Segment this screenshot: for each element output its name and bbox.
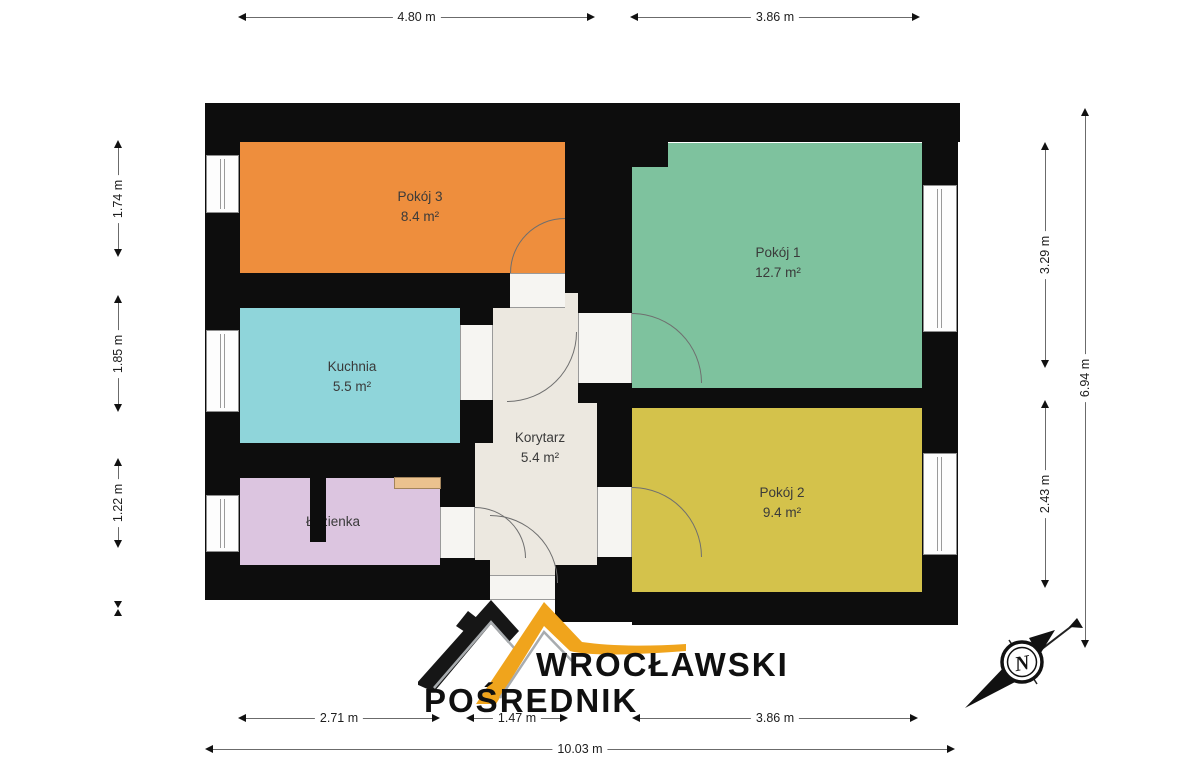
arrow-down-icon — [114, 540, 122, 548]
arrow-left-icon — [238, 714, 246, 722]
arrow-up-icon — [1041, 400, 1049, 408]
window-left-pokoj3 — [206, 155, 239, 213]
dim-label: 1.85 m — [111, 329, 125, 377]
door-opening-pokoj3 — [510, 273, 565, 308]
dimension-top-480: 4.80 m — [238, 10, 595, 24]
dimension-right-243: 2.43 m — [1038, 400, 1052, 588]
dimension-left-174: 1.74 m — [111, 140, 125, 257]
dimension-left-185: 1.85 m — [111, 295, 125, 412]
arrow-up-icon — [114, 295, 122, 303]
room-name: Kuchnia — [328, 357, 377, 377]
room-label-kuchnia: Kuchnia 5.5 m² — [328, 357, 377, 398]
window-glass-icon — [220, 159, 225, 209]
arrow-up-icon — [114, 140, 122, 148]
room-label-pokoj3: Pokój 3 8.4 m² — [397, 187, 442, 228]
window-left-lazienka — [206, 495, 239, 552]
room-name: Pokój 3 — [397, 187, 442, 207]
dimension-bottom-271: 2.71 m — [238, 711, 440, 725]
room-area: 8.4 m² — [397, 207, 442, 227]
wall-pokoj1-pokoj2-divider — [632, 388, 922, 408]
window-glass-icon — [937, 457, 942, 551]
room-area: 9.4 m² — [759, 503, 804, 523]
window-left-kuchnia — [206, 330, 239, 412]
arrow-up-icon — [1081, 108, 1089, 116]
window-glass-icon — [220, 334, 225, 408]
window-glass-icon — [220, 499, 225, 548]
arrow-up-icon — [114, 458, 122, 466]
dim-label: 2.71 m — [315, 711, 363, 725]
dim-label: 2.43 m — [1038, 470, 1052, 518]
wall-lazienka-stub — [310, 478, 326, 542]
room-label-pokoj2: Pokój 2 9.4 m² — [759, 483, 804, 524]
arrow-down-icon — [114, 601, 122, 608]
brand-logo: WROCŁAWSKI POŚREDNIK — [418, 598, 838, 723]
room-area: 12.7 m² — [755, 263, 801, 283]
arrow-down-icon — [1041, 580, 1049, 588]
door-opening-kuchnia — [460, 325, 493, 400]
dim-label: 1.22 m — [111, 479, 125, 527]
room-name: Pokój 2 — [759, 483, 804, 503]
room-name: Korytarz — [515, 428, 565, 448]
floor-plan-page: Łazienka Pokój 3 8.4 m² Pokój 1 12.7 m² — [0, 0, 1197, 770]
arrow-right-icon — [587, 13, 595, 21]
brand-name-line1: WROCŁAWSKI — [536, 648, 789, 681]
window-glass-icon — [937, 189, 942, 328]
dimension-top-386: 3.86 m — [630, 10, 920, 24]
arrow-left-icon — [205, 745, 213, 753]
arrow-right-icon — [910, 714, 918, 722]
brand-name-line2: POŚREDNIK — [424, 684, 638, 717]
dimension-right-694: 6.94 m — [1078, 108, 1092, 648]
door-opening-pokoj1 — [578, 313, 632, 383]
window-right-pokoj2 — [923, 453, 957, 555]
arrow-down-icon — [1041, 360, 1049, 368]
arrow-right-icon — [947, 745, 955, 753]
arrow-down-icon — [114, 404, 122, 412]
arrow-left-icon — [238, 13, 246, 21]
wall-entry-left — [440, 560, 490, 600]
dim-label: 3.29 m — [1038, 231, 1052, 279]
bathroom-shelf — [394, 477, 441, 489]
dim-label: 1.74 m — [111, 174, 125, 222]
dimension-right-329: 3.29 m — [1038, 142, 1052, 368]
arrow-right-icon — [912, 13, 920, 21]
dim-label: 3.86 m — [751, 10, 799, 24]
dim-label: 4.80 m — [392, 10, 440, 24]
room-area: 5.4 m² — [515, 448, 565, 468]
wall-center-chunk — [565, 103, 632, 293]
room-name: Pokój 1 — [755, 243, 801, 263]
arrow-up-icon — [114, 609, 122, 616]
wall-pokoj1-notch — [632, 142, 668, 167]
arrow-down-icon — [114, 249, 122, 257]
dimension-left-tiny-mark — [113, 601, 123, 616]
compass-north-icon: N — [965, 608, 1085, 712]
dim-label: 10.03 m — [552, 742, 607, 756]
arrow-left-icon — [630, 13, 638, 21]
dim-label: 6.94 m — [1078, 354, 1092, 402]
door-opening-lazienka — [440, 507, 475, 558]
dimension-left-122: 1.22 m — [111, 458, 125, 548]
dimension-bottom-1003: 10.03 m — [205, 742, 955, 756]
window-right-pokoj1 — [923, 185, 957, 332]
arrow-up-icon — [1041, 142, 1049, 150]
door-opening-pokoj2 — [597, 487, 632, 557]
room-label-korytarz: Korytarz 5.4 m² — [515, 428, 565, 469]
room-area: 5.5 m² — [328, 377, 377, 397]
room-label-pokoj1: Pokój 1 12.7 m² — [755, 243, 801, 284]
